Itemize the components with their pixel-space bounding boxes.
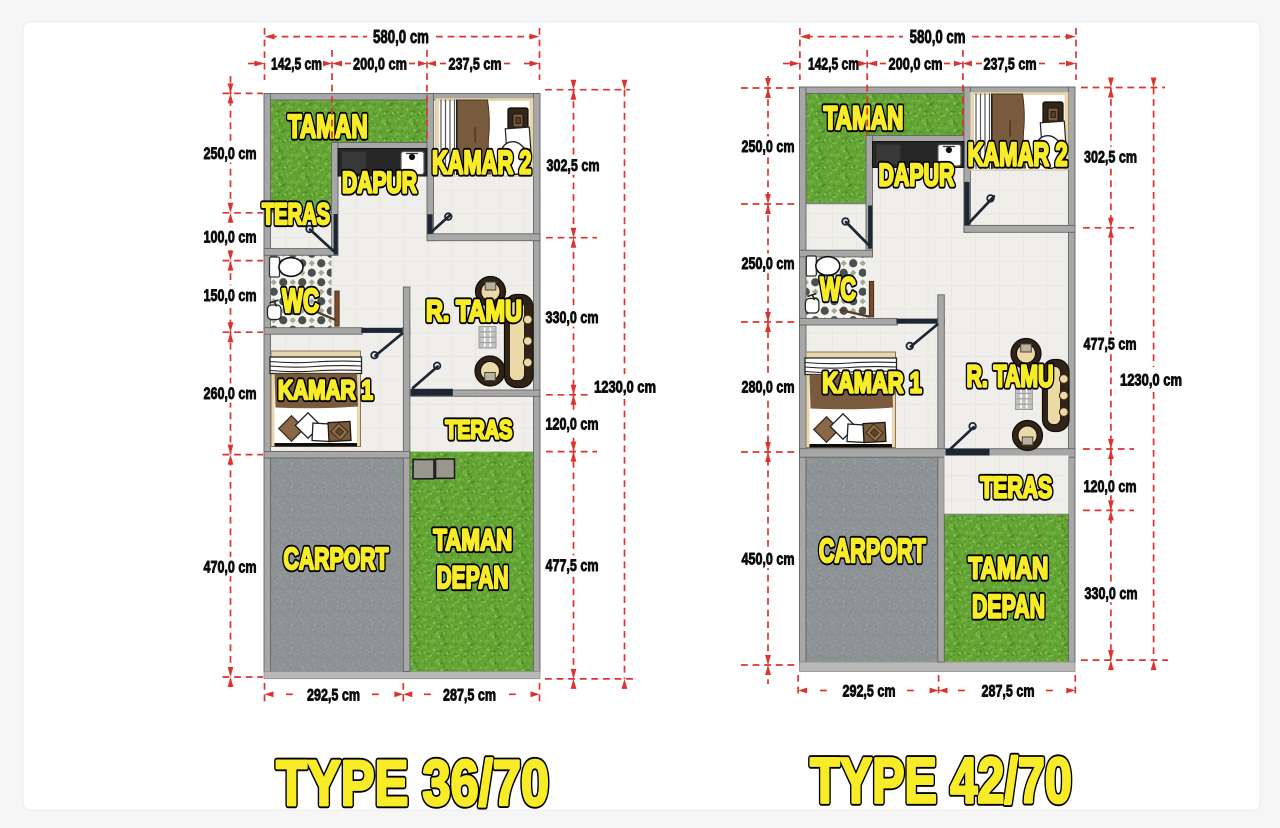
svg-text:260,0 cm: 260,0 cm	[204, 384, 257, 403]
svg-text:TERAS: TERAS	[980, 472, 1052, 504]
svg-text:450,0 cm: 450,0 cm	[742, 550, 795, 569]
svg-text:150,0 cm: 150,0 cm	[204, 286, 257, 305]
svg-text:580,0 cm: 580,0 cm	[910, 28, 966, 47]
svg-text:KAMAR 1: KAMAR 1	[278, 375, 373, 405]
svg-text:TYPE 36/70: TYPE 36/70	[276, 749, 549, 820]
svg-text:292,5 cm: 292,5 cm	[307, 686, 360, 705]
svg-text:R. TAMU: R. TAMU	[967, 358, 1054, 393]
svg-text:DAPUR: DAPUR	[342, 167, 417, 199]
svg-text:250,0 cm: 250,0 cm	[742, 254, 795, 273]
svg-text:1230,0 cm: 1230,0 cm	[1120, 371, 1182, 390]
svg-text:250,0 cm: 250,0 cm	[204, 144, 257, 163]
svg-text:142,5 cm: 142,5 cm	[271, 56, 322, 74]
svg-text:CARPORT: CARPORT	[284, 541, 389, 576]
svg-text:WC: WC	[282, 282, 319, 320]
svg-text:200,0 cm: 200,0 cm	[889, 55, 943, 74]
svg-text:DEPAN: DEPAN	[972, 588, 1045, 625]
svg-text:DAPUR: DAPUR	[879, 157, 955, 192]
svg-text:477,5 cm: 477,5 cm	[1084, 335, 1137, 354]
svg-text:TAMAN: TAMAN	[288, 107, 368, 144]
svg-text:CARPORT: CARPORT	[819, 531, 926, 569]
svg-text:120,0 cm: 120,0 cm	[1084, 477, 1137, 496]
svg-text:250,0 cm: 250,0 cm	[742, 137, 795, 156]
svg-text:TAMAN: TAMAN	[433, 523, 512, 557]
svg-text:292,5 cm: 292,5 cm	[843, 682, 896, 701]
svg-text:1230,0 cm: 1230,0 cm	[594, 378, 656, 397]
svg-text:KAMAR 2: KAMAR 2	[968, 136, 1068, 172]
svg-text:280,0 cm: 280,0 cm	[742, 378, 795, 397]
svg-text:DEPAN: DEPAN	[437, 560, 509, 595]
svg-text:TAMAN: TAMAN	[968, 551, 1048, 585]
svg-text:KAMAR 1: KAMAR 1	[822, 368, 921, 399]
svg-text:580,0 cm: 580,0 cm	[373, 28, 429, 47]
svg-text:237,5 cm: 237,5 cm	[984, 55, 1037, 74]
svg-text:287,5 cm: 287,5 cm	[982, 682, 1035, 701]
svg-text:R. TAMU: R. TAMU	[426, 295, 522, 328]
svg-text:KAMAR 2: KAMAR 2	[432, 144, 531, 180]
svg-text:330,0 cm: 330,0 cm	[546, 308, 599, 327]
svg-text:477,5 cm: 477,5 cm	[546, 556, 599, 575]
svg-text:142,5 cm: 142,5 cm	[808, 56, 859, 74]
svg-text:470,0 cm: 470,0 cm	[204, 558, 257, 577]
svg-text:WC: WC	[820, 271, 856, 308]
svg-text:TAMAN: TAMAN	[824, 99, 904, 136]
svg-text:200,0 cm: 200,0 cm	[353, 55, 407, 74]
svg-text:TYPE 42/70: TYPE 42/70	[810, 745, 1072, 816]
svg-text:TERAS: TERAS	[262, 198, 330, 231]
svg-text:302,5 cm: 302,5 cm	[547, 156, 600, 175]
svg-text:287,5 cm: 287,5 cm	[443, 686, 496, 705]
svg-text:330,0 cm: 330,0 cm	[1085, 584, 1138, 603]
svg-text:100,0 cm: 100,0 cm	[204, 228, 257, 247]
svg-text:TERAS: TERAS	[445, 415, 512, 444]
svg-text:302,5 cm: 302,5 cm	[1084, 148, 1137, 167]
svg-text:237,5 cm: 237,5 cm	[449, 55, 502, 74]
svg-text:120,0 cm: 120,0 cm	[546, 415, 599, 434]
